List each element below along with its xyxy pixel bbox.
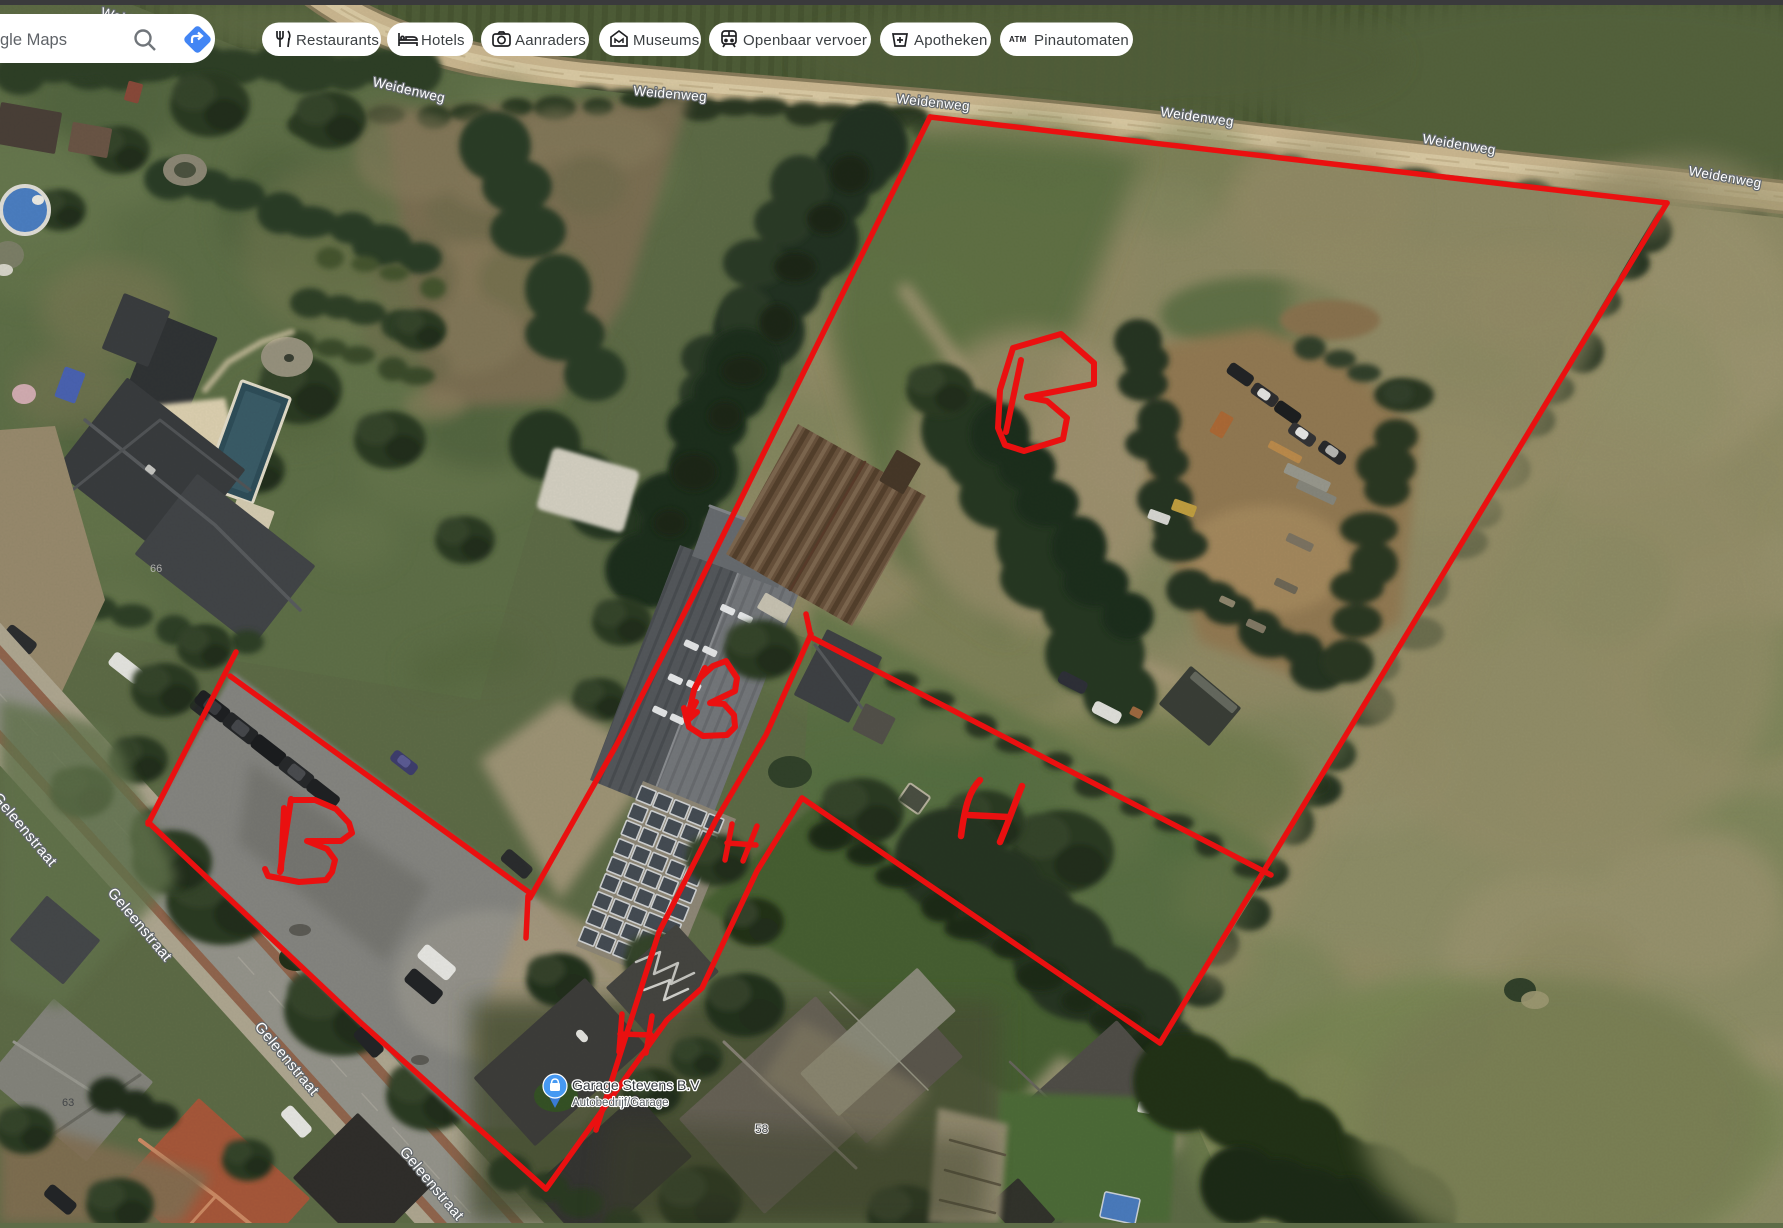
svg-text:Aanraders: Aanraders (515, 32, 586, 49)
svg-text:gle Maps: gle Maps (0, 31, 67, 49)
svg-text:Museums: Museums (633, 32, 699, 49)
svg-text:Restaurants: Restaurants (296, 32, 379, 49)
svg-text:ATM: ATM (1009, 35, 1027, 44)
svg-text:Hotels: Hotels (421, 32, 465, 49)
svg-text:58: 58 (755, 1122, 769, 1136)
svg-text:Autobedrijf/Garage: Autobedrijf/Garage (572, 1097, 669, 1109)
svg-text:Pinautomaten: Pinautomaten (1034, 32, 1129, 49)
svg-text:Openbaar vervoer: Openbaar vervoer (743, 32, 867, 49)
svg-text:Apotheken: Apotheken (914, 32, 988, 49)
svg-text:Garage Stevens B.V: Garage Stevens B.V (572, 1077, 700, 1093)
